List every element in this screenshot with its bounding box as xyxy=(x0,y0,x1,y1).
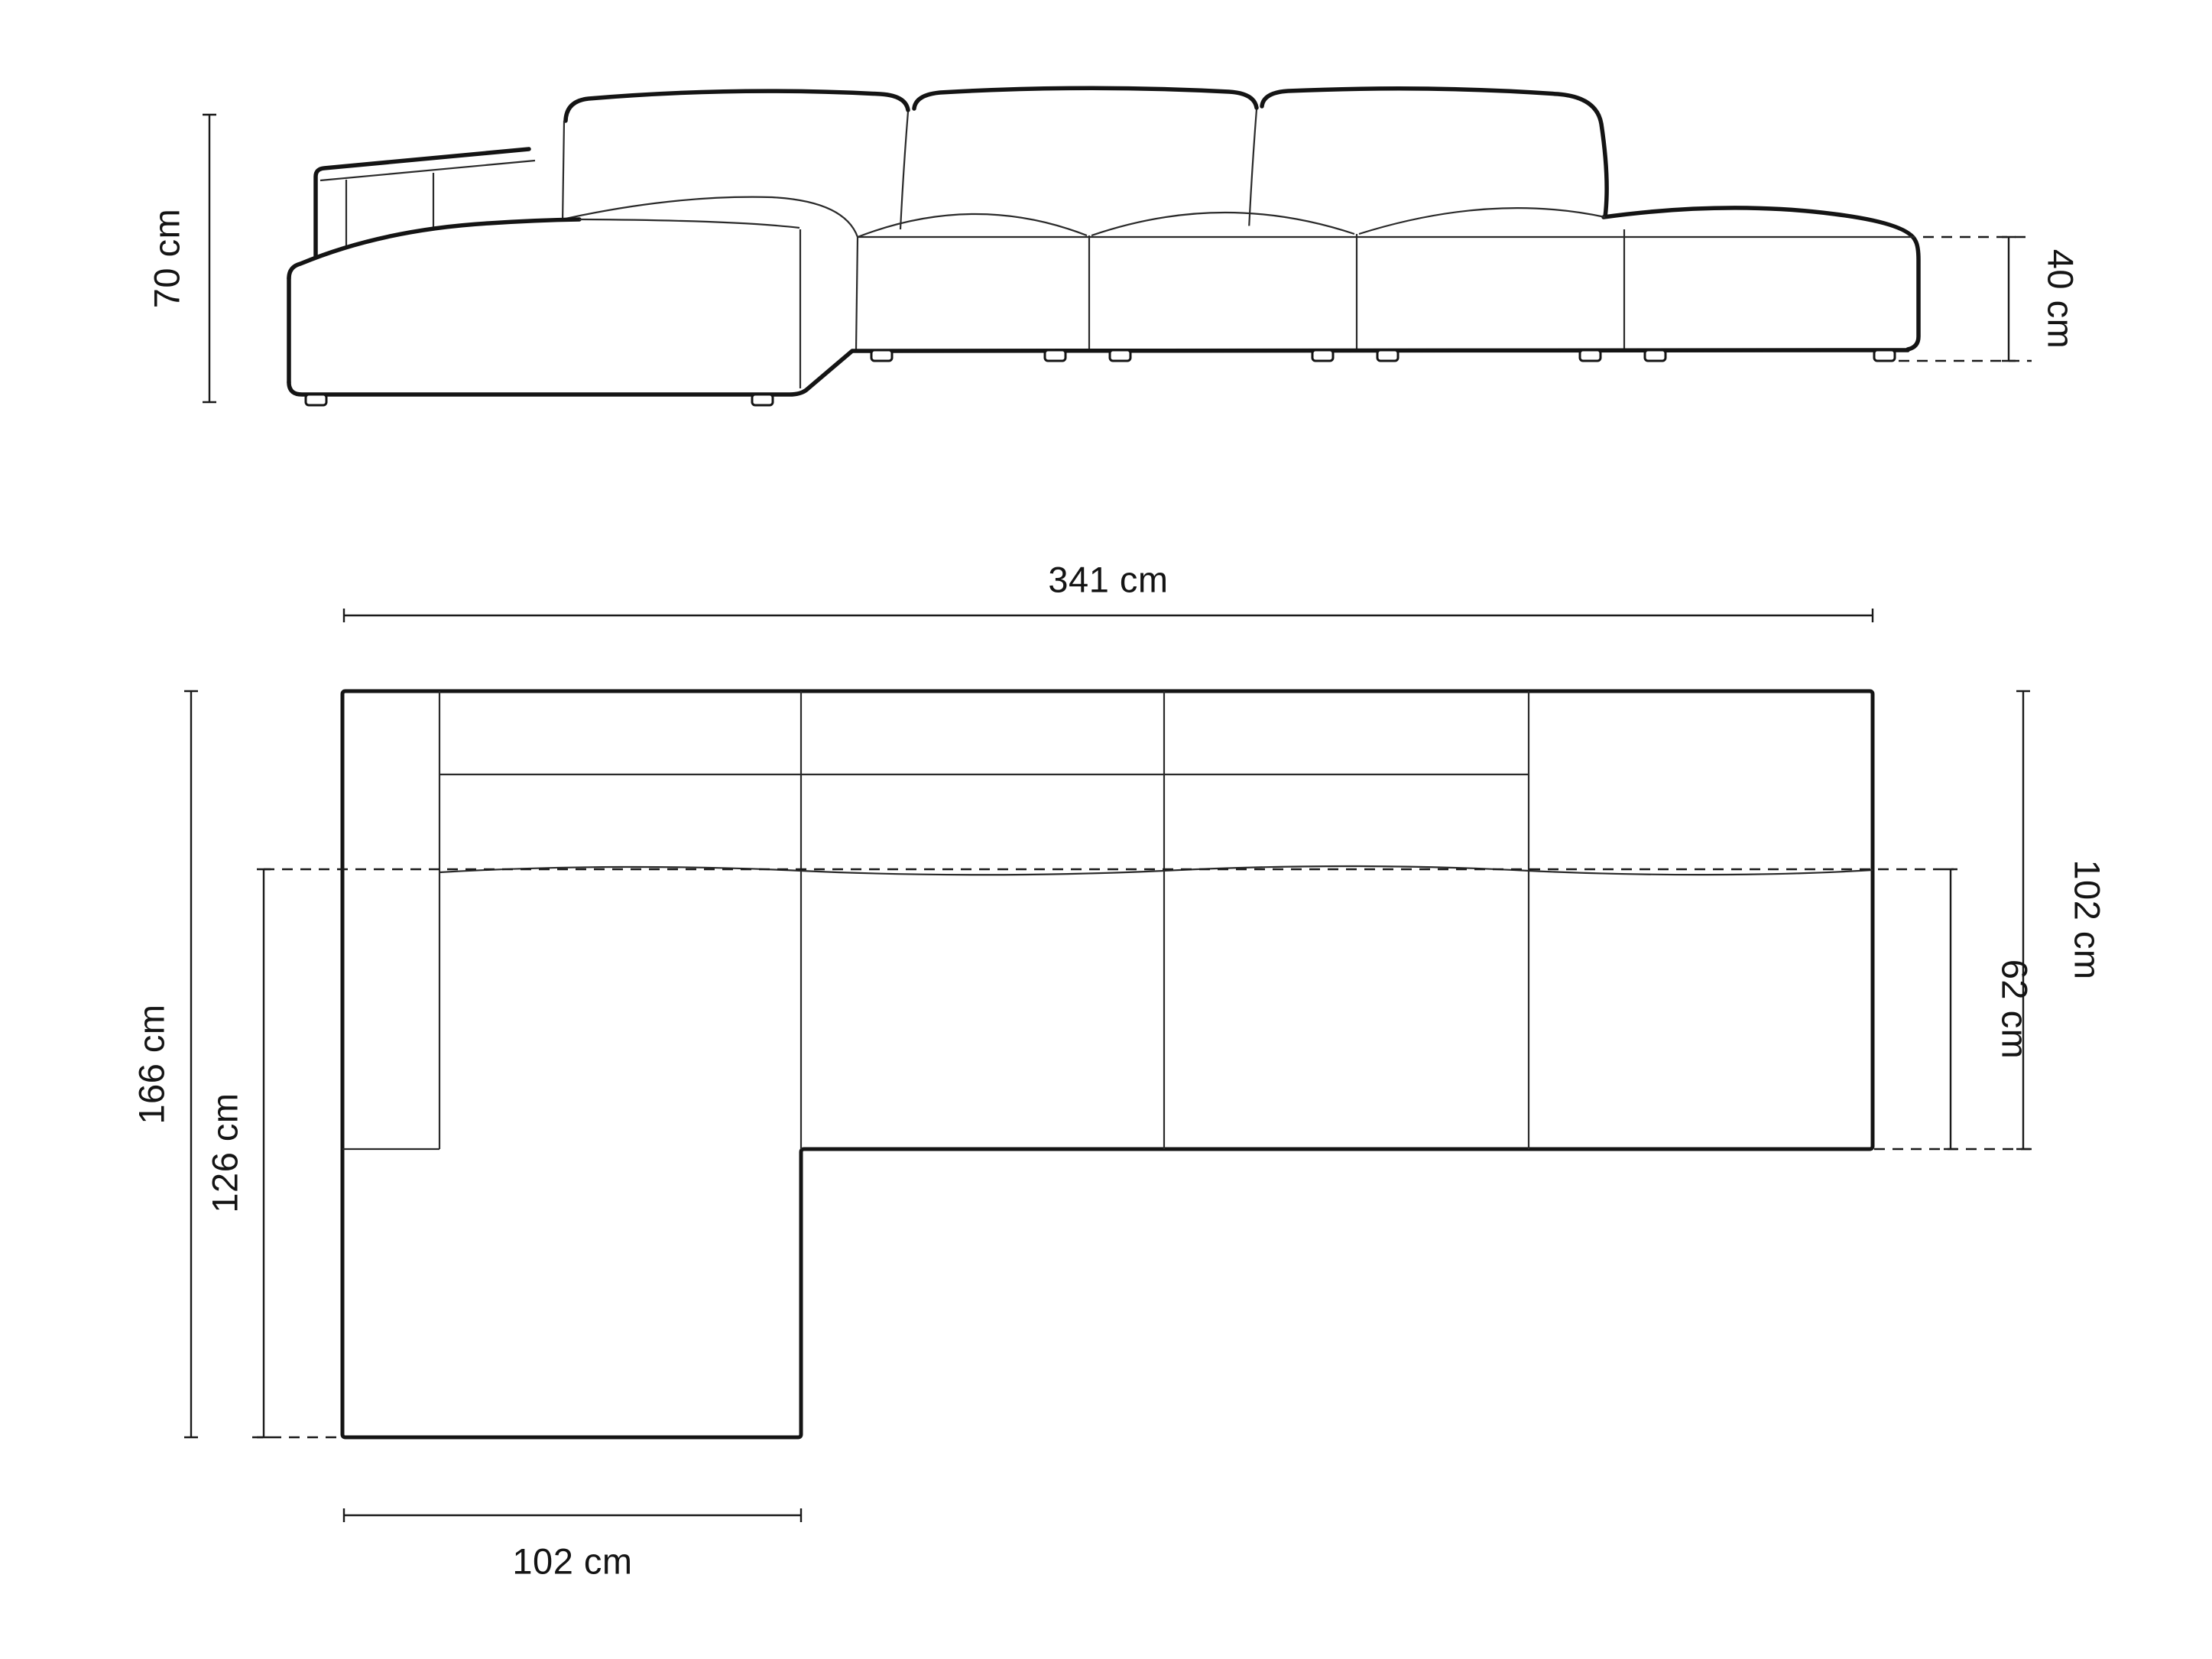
dim-label-102cm-right: 102 cm xyxy=(2068,859,2108,979)
foot xyxy=(1110,350,1130,361)
dim-label-70cm: 70 cm xyxy=(146,209,186,309)
foot xyxy=(1874,350,1895,361)
foot xyxy=(306,394,326,405)
foot xyxy=(871,350,892,361)
dim-elevation-height: 70 cm xyxy=(146,115,216,402)
dim-label-126cm: 126 cm xyxy=(204,1092,245,1213)
dim-plan-right-depth: 102 cm xyxy=(2016,691,2108,1149)
elevation-chaise xyxy=(289,219,852,394)
dim-label-62cm: 62 cm xyxy=(1995,959,2035,1060)
dim-label-40cm: 40 cm xyxy=(2041,249,2081,349)
plan-view: 341 cm 166 cm 126 cm 102 cm xyxy=(131,559,2107,1581)
plan-fill xyxy=(342,691,1873,1437)
dim-label-166cm: 166 cm xyxy=(131,1004,171,1124)
backrest-fill xyxy=(563,86,1607,239)
chaise-fill xyxy=(289,220,801,395)
foot xyxy=(1312,350,1333,361)
dim-plan-chaise-width: 102 cm xyxy=(344,1508,801,1581)
foot xyxy=(1045,350,1065,361)
foot xyxy=(1377,350,1398,361)
foot xyxy=(1645,350,1665,361)
elevation-backrest xyxy=(563,86,1607,239)
dim-plan-seat-depth: 62 cm xyxy=(1944,869,2035,1149)
dim-label-102cm-bottom: 102 cm xyxy=(512,1540,632,1581)
foot xyxy=(1580,350,1601,361)
sofa-diagram-canvas: 70 cm 40 cm xyxy=(0,0,2212,1659)
dim-label-341cm: 341 cm xyxy=(1048,559,1168,599)
foot xyxy=(752,394,773,405)
elevation-view: 70 cm 40 cm xyxy=(146,86,2081,405)
dim-plan-total-depth: 166 cm xyxy=(131,691,198,1437)
dim-plan-width: 341 cm xyxy=(344,559,1873,622)
sofa-dimension-drawing: 70 cm 40 cm xyxy=(0,0,2212,1659)
dim-ottoman-height: 40 cm xyxy=(1899,237,2081,361)
dim-plan-chaise-inner-depth: 126 cm xyxy=(204,869,271,1437)
